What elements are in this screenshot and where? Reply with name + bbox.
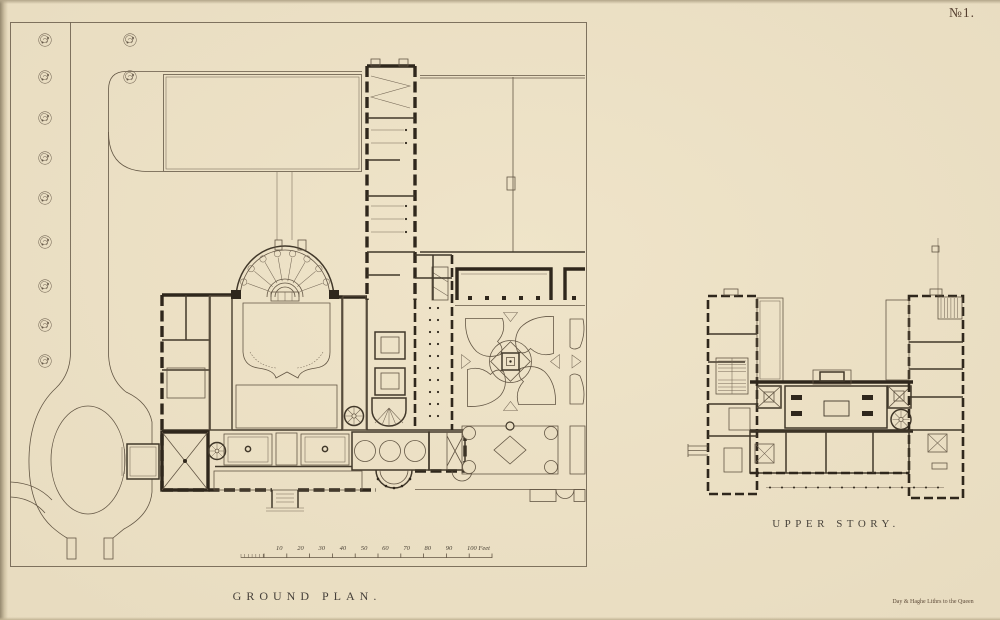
lithographer-credit: Day & Haghe Lithrs to the Queen: [878, 599, 988, 605]
scale-label: 90: [446, 546, 453, 553]
scale-label: 60: [382, 546, 389, 553]
scale-label: 20: [297, 546, 304, 553]
plate-number: №1.: [930, 5, 994, 21]
scale-end-label: 100 Feet: [467, 546, 490, 553]
scale-label: 40: [340, 546, 347, 553]
coffered-corridors: [167, 296, 366, 430]
central-court-and-conservatory-apse: [231, 240, 339, 378]
upper-story-plan: [688, 238, 963, 498]
scale-label: 50: [361, 546, 368, 553]
upper-story-title: UPPER STORY.: [758, 518, 914, 530]
scale-label: 80: [425, 546, 432, 553]
entrance-porch-and-hall: [122, 432, 226, 490]
trees-row: [39, 34, 137, 368]
ground-plan-title: GROUND PLAN.: [228, 589, 386, 604]
east-wing-rooms: [345, 307, 440, 426]
lithograph-plate: №1. 10 20 30 40 50 60 70 80 90 100 Feet …: [0, 0, 1000, 620]
scale-label: 10: [276, 546, 283, 553]
parterre-gardens: [455, 306, 585, 475]
scale-label: 70: [403, 546, 410, 553]
scale-bar: [241, 554, 492, 559]
scale-label: 30: [318, 546, 325, 553]
stable-yard: [420, 77, 585, 300]
south-rooms-and-terrace: [214, 432, 585, 511]
scale-bar-labels: 10 20 30 40 50 60 70 80 90 100 Feet: [276, 546, 490, 553]
stable-wing: [367, 59, 415, 300]
carriage-drive-oval: [29, 388, 152, 559]
paddock-enclosure: [164, 75, 362, 241]
